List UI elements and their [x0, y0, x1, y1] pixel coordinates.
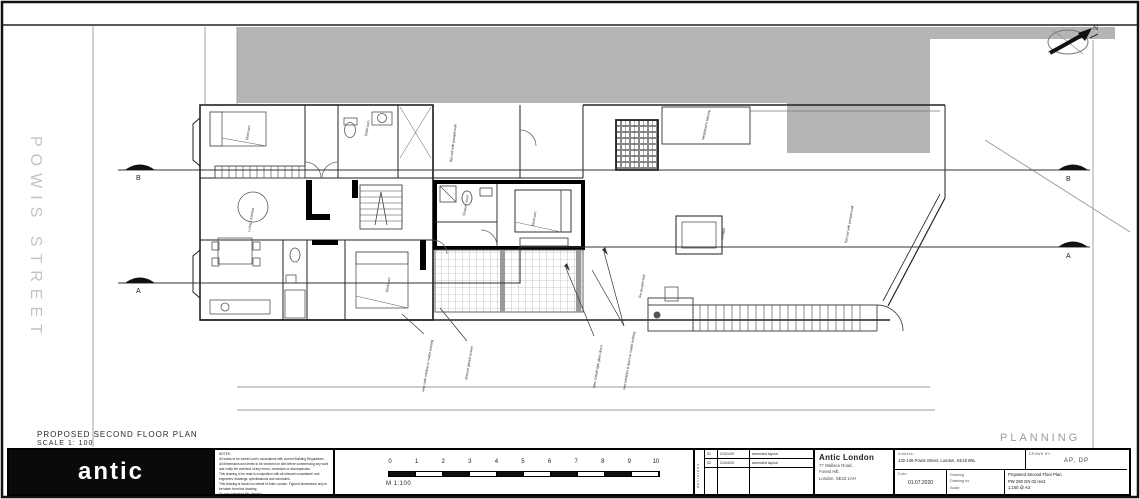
- scale-bar: [388, 471, 660, 477]
- revision-desc: amended layout: [750, 459, 813, 468]
- section-marker-b-left: [125, 165, 155, 171]
- section-letter: A: [136, 288, 141, 295]
- scale-tick: 1: [412, 459, 422, 465]
- date-box: Date: 01.07.2020: [895, 470, 947, 494]
- section-marker-a-right: [1058, 242, 1088, 248]
- annotation: new windows & doors to match existing: [622, 331, 636, 390]
- scale-tick: 7: [571, 459, 581, 465]
- drawn-by-label: DRAWN BY:: [1029, 452, 1124, 456]
- section-marker-a-left: [125, 278, 155, 284]
- drawing-no-label: Drawing no.: [950, 478, 1001, 485]
- revision-date: 21/04/20: [718, 459, 749, 468]
- section-letter: A: [1066, 253, 1071, 260]
- drawing-labels-box: Drawing Drawing no. Scale: [947, 470, 1005, 494]
- planning-stamp: PLANNING: [1000, 432, 1080, 444]
- scale-bar-ticks: 0 1 2 3 4 5 6 7 8 9 10: [385, 459, 661, 465]
- notes-line: This drawing is issued on behalf of Anti…: [219, 482, 329, 492]
- scale-tick: 0: [385, 459, 395, 465]
- scale-value: 1:100 @ A3: [1008, 485, 1124, 492]
- plan-scale-note: SCALE 1: 100: [37, 440, 93, 447]
- project-address-label: Address:: [898, 452, 1022, 456]
- plan-title: PROPOSED SECOND FLOOR PLAN: [37, 430, 198, 439]
- drawing-sheet: B B A A N Bedroom Bathroom Living / Kitc…: [0, 0, 1140, 499]
- revision-desc: amended layout: [750, 450, 813, 459]
- scale-tick: 8: [598, 459, 608, 465]
- date-label: Date:: [898, 472, 943, 476]
- practice-address-line: London, SE23 1AH: [819, 476, 889, 482]
- revision-date-column: 21/01/20 21/04/20: [718, 450, 750, 494]
- annotation: obscure glazed screen: [464, 346, 474, 380]
- drawing-values-box: Proposed Second Floor Plan PW 280 GN 02 …: [1005, 470, 1127, 494]
- section-letter: B: [136, 175, 141, 182]
- scale-label: Scale: [950, 485, 1001, 492]
- street-label: POWIS STREET: [26, 136, 44, 341]
- title-block: antic NOTES: All works to be carried out…: [7, 448, 1131, 496]
- project-panel: Address: 132-136 Powis Street, London, S…: [895, 450, 1127, 494]
- drawing-label: Drawing: [950, 472, 1001, 479]
- antic-logo: antic: [9, 450, 215, 494]
- scale-tick: 6: [545, 459, 555, 465]
- scale-tick: 2: [438, 459, 448, 465]
- project-address-box: Address: 132-136 Powis Street, London, S…: [895, 450, 1026, 469]
- floor-plan-drawing: B B A A N Bedroom Bathroom Living / Kitc…: [0, 0, 1140, 499]
- scale-bar-panel: 0 1 2 3 4 5 6 7 8 9 10 M 1:100: [335, 450, 695, 494]
- scale-tick: 5: [518, 459, 528, 465]
- drawing-no-value: PW 280 GN 02 rev2: [1008, 479, 1124, 486]
- scale-tick: 9: [624, 459, 634, 465]
- drawn-by-value: AP, DP: [1029, 458, 1124, 464]
- revision-date: 21/01/20: [718, 450, 749, 459]
- notes-line: Do not scale from this drawing.: [219, 492, 329, 497]
- antic-logo-text: antic: [78, 458, 144, 486]
- revision-number-column: 01 02: [705, 450, 718, 494]
- scale-tick: 4: [491, 459, 501, 465]
- adjacent-building-mass: [237, 27, 1115, 103]
- notes-panel: NOTES: All works to be carried out in ac…: [215, 450, 335, 494]
- drawing-value: Proposed Second Floor Plan: [1008, 472, 1124, 479]
- roof-terrace: [435, 250, 583, 312]
- section-letter: B: [1066, 176, 1071, 183]
- revisions-panel: REVISIONS 01 02 21/01/20 21/04/20 amende…: [695, 450, 815, 494]
- new-extension: [435, 182, 583, 248]
- revisions-side-label: REVISIONS: [695, 450, 705, 494]
- practice-panel: Antic London 77 Wallace Road, Forest Hil…: [815, 450, 895, 494]
- annotation: new sash window to match existing: [421, 339, 434, 392]
- section-marker-b-right: [1058, 165, 1088, 171]
- notes-line: All dimensions and levels to be checked …: [219, 462, 329, 472]
- project-address-value: 132-136 Powis Street, London, SE18 6NL: [898, 458, 1022, 463]
- practice-name: Antic London: [819, 453, 889, 462]
- annotation: New Crittall style glass doors: [592, 344, 604, 388]
- revision-no: 01: [705, 450, 717, 459]
- revision-no: 02: [705, 459, 717, 468]
- glazed-roof-hatch: [616, 120, 658, 170]
- scale-tick: 3: [465, 459, 475, 465]
- notes-line: This drawing to be read in conjunction w…: [219, 472, 329, 482]
- date-value: 01.07.2020: [898, 480, 943, 486]
- scale-tick: 10: [651, 459, 661, 465]
- adjacent-building-overlap: [787, 100, 930, 153]
- drawn-by-box: DRAWN BY: AP, DP: [1026, 450, 1127, 469]
- north-label: N: [1093, 25, 1098, 32]
- scale-bar-unit: M 1:100: [386, 481, 411, 487]
- revision-desc-column: amended layout amended layout: [750, 450, 813, 494]
